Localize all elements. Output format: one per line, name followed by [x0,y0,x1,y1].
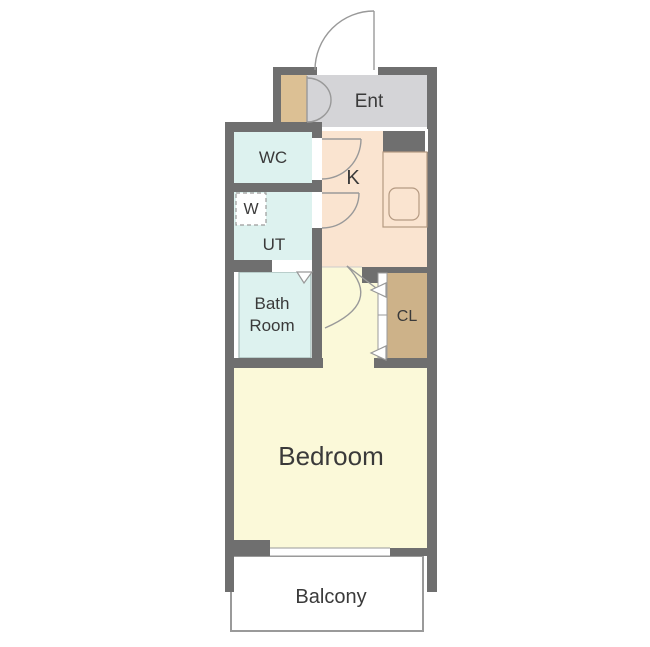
entrance-door-swing [315,11,374,70]
label-kitchen: K [346,167,360,189]
wall-bath-bottom [225,358,323,368]
wall-wc-ut-divider [225,183,312,192]
label-closet: CL [397,308,418,325]
wall-above-counter [383,131,427,152]
wall-kitchen-left-1 [312,122,322,138]
wall-ut-bath-divider [225,260,272,272]
label-entrance: Ent [355,91,384,112]
wall-bedroom-bottom-left [225,540,270,556]
label-utility: UT [263,235,286,254]
label-bedroom: Bedroom [278,441,384,471]
ut-door-opening [312,192,322,228]
shoe-cabinet [281,75,307,122]
wall-ent-left [273,67,281,131]
wall-wc-top [225,122,322,132]
bedroom-window [270,548,390,556]
wall-right [427,67,437,592]
counter-wall-gap [425,129,428,152]
label-bath-line1: Bath [255,294,290,313]
label-balcony: Balcony [295,586,366,608]
bath-door-opening [272,260,312,272]
wall-bath-right [312,272,322,368]
wall-bedroom-bottom-right [390,548,427,556]
label-washer: W [243,201,259,218]
label-wc: WC [259,148,287,167]
floorplan-diagram: Ent WC W UT K Bath Room CL Bedroom Balco… [0,0,650,647]
label-bath-line2: Room [249,316,294,335]
wall-closet-top [378,267,427,273]
wall-closet-bottom [374,358,427,368]
wall-kitchen-left-3 [312,228,322,272]
wc-door-opening [312,138,322,180]
room-bath-floor [239,272,311,358]
wall-kitchen-left-2 [312,180,322,192]
floorplan-canvas: Ent WC W UT K Bath Room CL Bedroom Balco… [0,0,650,647]
wall-left [225,122,234,592]
